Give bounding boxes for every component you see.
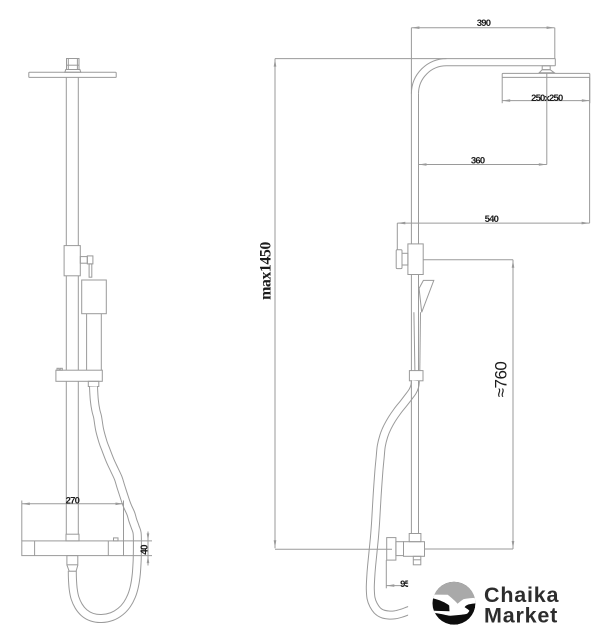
svg-text:390: 390 — [477, 18, 491, 29]
svg-text:270: 270 — [66, 495, 80, 506]
svg-text:540: 540 — [485, 214, 499, 225]
svg-text:40: 40 — [140, 544, 151, 555]
svg-text:max1450: max1450 — [257, 242, 274, 300]
svg-text:360: 360 — [471, 155, 485, 166]
svg-text:≈760: ≈760 — [491, 362, 510, 398]
svg-text:Market: Market — [484, 604, 558, 628]
